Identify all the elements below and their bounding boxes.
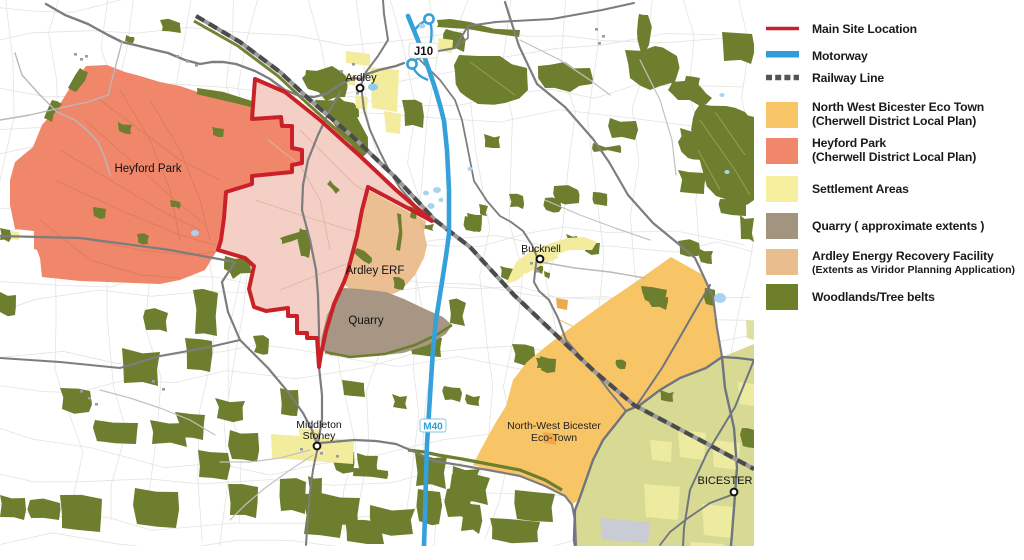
svg-text:(Extents as Viridor Planning A: (Extents as Viridor Planning Application… [812,264,1015,276]
svg-text:BICESTER: BICESTER [697,475,752,487]
svg-text:Ardley ERF: Ardley ERF [346,265,405,277]
svg-text:Settlement Areas: Settlement Areas [812,182,909,196]
svg-text:Eco-Town: Eco-Town [531,432,577,444]
svg-text:North-West Bicester: North-West Bicester [507,420,601,432]
svg-text:(Cherwell District Local Plan): (Cherwell District Local Plan) [812,114,976,128]
svg-text:(Cherwell District Local Plan): (Cherwell District Local Plan) [812,150,976,164]
svg-text:Woodlands/Tree belts: Woodlands/Tree belts [812,290,935,304]
svg-text:Motorway: Motorway [812,49,868,63]
svg-text:Ardley: Ardley [345,72,377,84]
svg-text:Main Site Location: Main Site Location [812,22,917,36]
svg-text:Bucknell: Bucknell [521,243,561,255]
svg-text:Ardley Energy Recovery Facilit: Ardley Energy Recovery Facility [812,249,994,263]
svg-text:J10: J10 [414,46,433,58]
svg-text:Quarry: Quarry [348,315,383,327]
svg-text:Railway Line: Railway Line [812,71,884,85]
svg-text:Heyford Park: Heyford Park [114,163,181,175]
svg-text:Heyford Park: Heyford Park [812,136,886,150]
svg-text:M40: M40 [423,422,443,433]
svg-text:North West Bicester Eco Town: North West Bicester Eco Town [812,100,984,114]
svg-text:Stoney: Stoney [303,430,336,442]
svg-text:Quarry ( approximate extents ): Quarry ( approximate extents ) [812,219,984,233]
